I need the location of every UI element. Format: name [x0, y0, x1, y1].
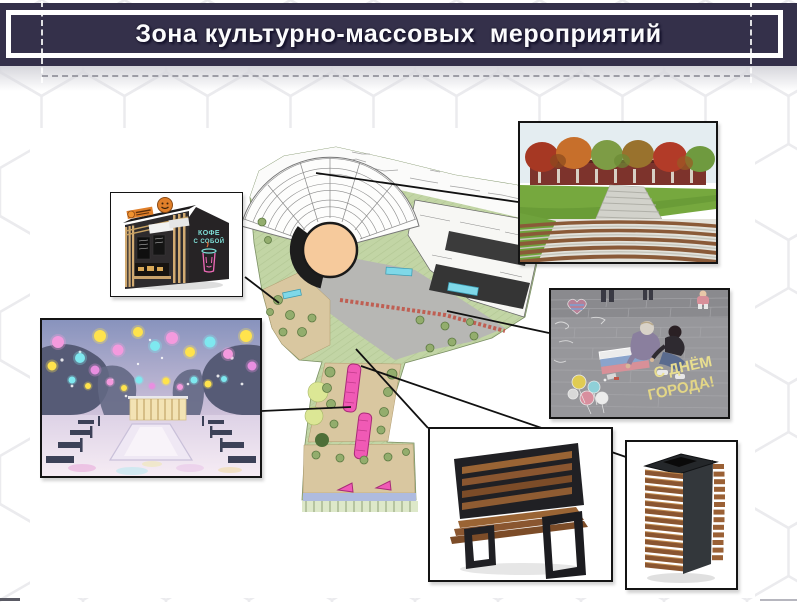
right-dashed-guide — [750, 1, 752, 83]
bottom-right-border-tick — [760, 599, 797, 601]
left-dashed-guide — [41, 1, 43, 83]
amphitheater-photo — [518, 121, 718, 264]
page-title: Зона культурно-массовых мероприятий — [0, 3, 797, 66]
trash-bin-photo — [625, 440, 738, 590]
kiosk-neon-text-line2: С СОБОЙ — [194, 237, 225, 245]
winter-alley-photo — [40, 318, 262, 478]
bottom-left-border-tick — [0, 598, 20, 601]
kiosk-neon-text-line1: КОФЕ — [198, 230, 220, 237]
slide-root: КОФЕ С СОБОЙ — [0, 0, 797, 602]
title-banner: Зона культурно-массовых мероприятий — [0, 3, 797, 66]
chalk-drawing-photo: С ДНЁМ ГОРОДА! — [549, 288, 730, 419]
horizontal-dashed-guide — [42, 75, 750, 77]
coffee-kiosk-photo: КОФЕ С СОБОЙ — [110, 192, 243, 297]
bench-photo — [428, 427, 613, 582]
